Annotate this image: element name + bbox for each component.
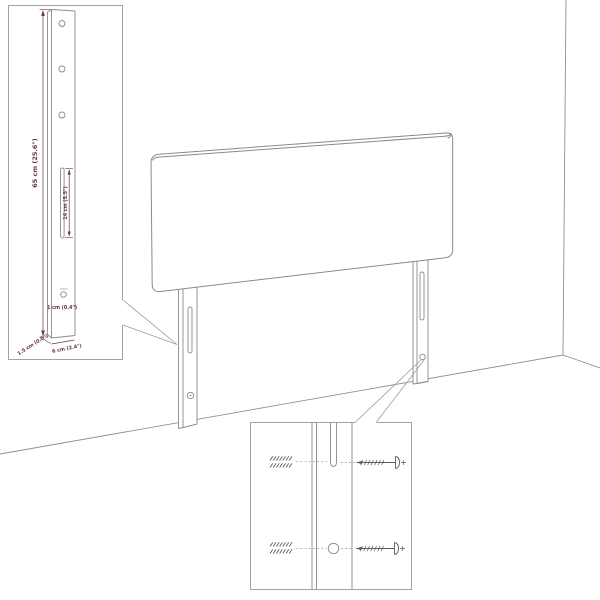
- wall-plug-bottom-hatch: [270, 542, 292, 546]
- screw-top-head: [396, 457, 400, 469]
- slot-length-dimension-label: 14 cm (5.5"): [63, 186, 69, 219]
- base-dimensions: [44, 339, 75, 344]
- mounting-hole-icon: [61, 292, 67, 298]
- wall-corner-icon: [563, 0, 566, 355]
- height-dimension-label: 65 cm (25.6"): [31, 138, 39, 188]
- leg-slot-icon: [331, 423, 337, 467]
- screw-bottom-cross: [400, 546, 405, 551]
- floor-line-icon: [0, 355, 563, 454]
- wall-plug-bottom-hatch2: [270, 549, 292, 553]
- callout-right-b: [377, 360, 425, 423]
- assembly-diagram-svg: [0, 0, 600, 600]
- wall-plug-icon-2: [270, 542, 292, 553]
- post-hole-3: [59, 112, 65, 118]
- screw-top-cross: [401, 460, 406, 465]
- left-leg-body: [179, 284, 198, 429]
- headboard-panel-icon: [151, 133, 453, 292]
- wall-plug-top-hatch2: [270, 463, 292, 467]
- screw-icon: [357, 457, 407, 469]
- callout-left-upper: [123, 300, 177, 345]
- mounting-detail-inset: [251, 423, 412, 590]
- leg-hole-icon: [328, 543, 338, 553]
- screw-icon-2: [356, 543, 405, 555]
- slot-dim-arrow-down: [68, 232, 71, 237]
- leg-closeup: [312, 423, 352, 590]
- width-dim-line: [52, 340, 75, 344]
- mounting-detail-inset-border: [251, 423, 412, 590]
- diagram-stage: 65 cm (25.6") 14 cm (5.5") 1 cm (0.4") 1…: [0, 0, 600, 600]
- leader-lines: [296, 462, 355, 549]
- screw-bottom-head: [395, 543, 399, 555]
- wall-plug-top-hatch: [270, 456, 292, 460]
- left-leg-hole-center: [190, 395, 192, 397]
- floor-line-right: [563, 355, 600, 368]
- height-dimension: [40, 10, 53, 338]
- slot-dim-arrow-up: [68, 170, 71, 175]
- callout-lines: [123, 300, 425, 422]
- callout-right-a: [356, 360, 422, 423]
- post-hole-1: [59, 21, 65, 27]
- post-hole-2: [59, 66, 65, 72]
- wall-plug-icon: [270, 456, 292, 467]
- height-dim-arrow-up: [41, 10, 45, 16]
- left-leg-icon: [179, 284, 198, 429]
- headboard-panel-outline: [151, 133, 453, 292]
- callout-left-lower: [123, 325, 177, 345]
- post-side-view-icon: [48, 10, 76, 339]
- hole-diameter-dimension-label: 1 cm (0.4"): [47, 305, 77, 311]
